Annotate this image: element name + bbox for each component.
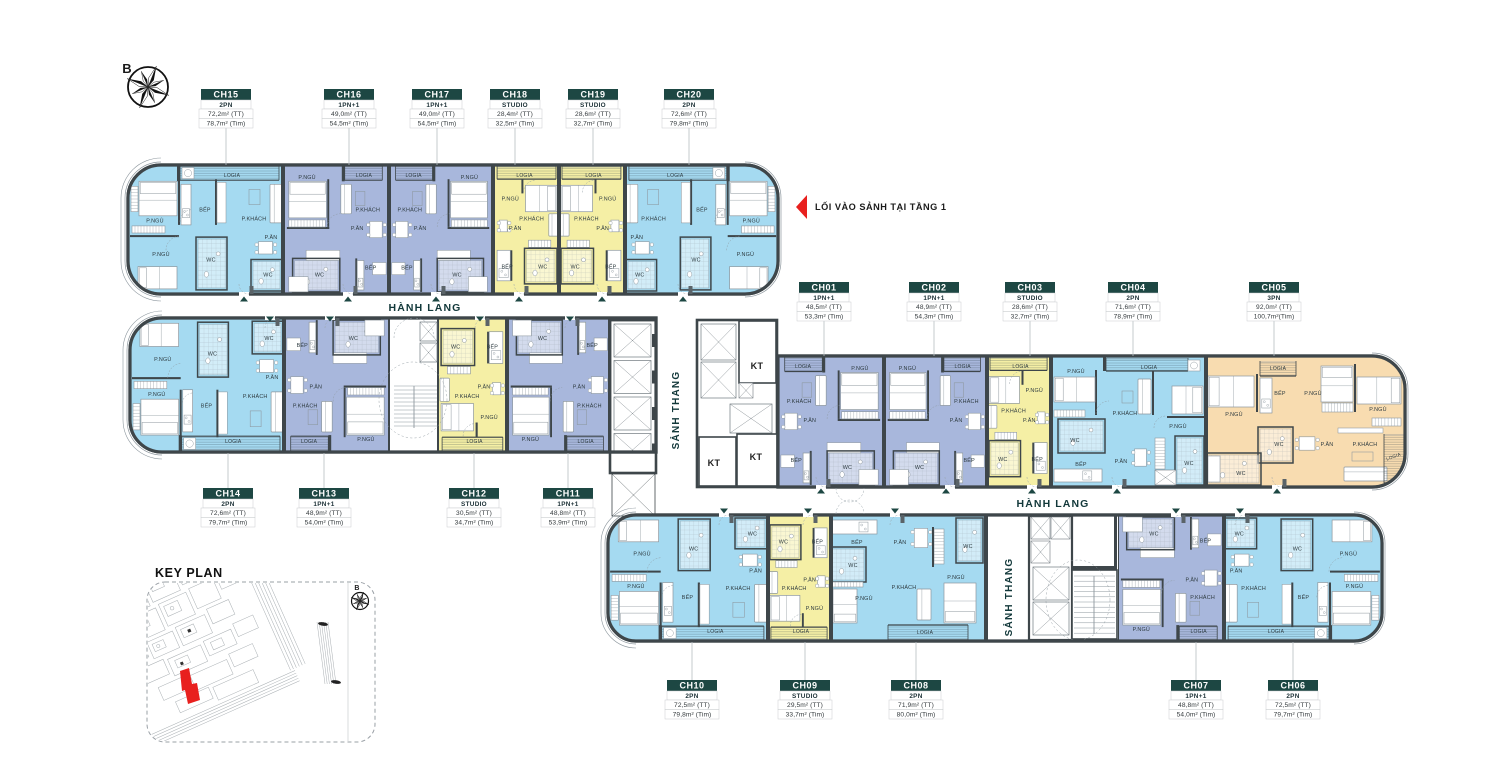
svg-text:LOGIA: LOGIA	[356, 173, 373, 179]
svg-text:SẢNH THANG: SẢNH THANG	[669, 371, 682, 450]
svg-text:CH16: CH16	[336, 90, 361, 100]
svg-text:WC: WC	[451, 344, 460, 350]
svg-text:P.NGỦ: P.NGỦ	[298, 174, 315, 181]
svg-text:WC: WC	[315, 273, 324, 279]
svg-text:1PN+1: 1PN+1	[557, 501, 578, 508]
svg-text:LOGIA: LOGIA	[224, 173, 241, 179]
svg-text:P.KHÁCH: P.KHÁCH	[242, 216, 267, 223]
svg-text:BẾP: BẾP	[1032, 456, 1044, 463]
svg-text:BẾP: BẾP	[365, 264, 377, 271]
svg-text:P.NGỦ: P.NGỦ	[1169, 423, 1186, 430]
svg-text:54,3m² (Tim): 54,3m² (Tim)	[915, 314, 954, 321]
svg-text:BẾP: BẾP	[682, 594, 694, 601]
svg-text:P.KHÁCH: P.KHÁCH	[355, 207, 380, 214]
svg-text:P.ĂN: P.ĂN	[1230, 567, 1243, 574]
svg-text:CH12: CH12	[461, 489, 486, 499]
svg-text:P.NGỦ: P.NGỦ	[806, 605, 823, 612]
svg-text:92,0m² (TT): 92,0m² (TT)	[1256, 304, 1292, 311]
svg-text:29,5m² (TT): 29,5m² (TT)	[787, 702, 823, 709]
svg-text:79,8m² (Tim): 79,8m² (Tim)	[670, 121, 709, 128]
svg-text:WC: WC	[538, 336, 547, 342]
svg-text:P.KHÁCH: P.KHÁCH	[726, 585, 751, 592]
svg-text:WC: WC	[691, 257, 700, 263]
svg-text:71,6m² (TT): 71,6m² (TT)	[1115, 304, 1151, 311]
svg-text:P.KHÁCH: P.KHÁCH	[243, 393, 268, 400]
svg-text:CH14: CH14	[215, 489, 240, 499]
svg-text:P.KHÁCH: P.KHÁCH	[577, 402, 602, 409]
svg-text:WC: WC	[208, 352, 217, 358]
svg-text:LỐI VÀO SẢNH TẠI TẦNG 1: LỐI VÀO SẢNH TẠI TẦNG 1	[815, 201, 946, 212]
svg-text:BẾP: BẾP	[199, 207, 211, 214]
svg-text:WC: WC	[264, 336, 273, 342]
svg-text:P.NGỦ: P.NGỦ	[481, 414, 498, 421]
svg-text:49,0m² (TT): 49,0m² (TT)	[331, 111, 367, 118]
svg-text:P.NGỦ: P.NGỦ	[627, 583, 644, 590]
svg-text:LOGIA: LOGIA	[1268, 629, 1285, 635]
svg-text:CH13: CH13	[311, 489, 336, 499]
svg-text:CH09: CH09	[792, 681, 817, 691]
svg-text:LOGIA: LOGIA	[578, 439, 595, 445]
svg-text:P.NGỦ: P.NGỦ	[1340, 551, 1357, 558]
svg-text:P.NGỦ: P.NGỦ	[522, 436, 539, 443]
svg-text:STUDIO: STUDIO	[461, 501, 487, 508]
svg-text:LOGIA: LOGIA	[793, 629, 810, 635]
svg-text:72,5m² (TT): 72,5m² (TT)	[674, 702, 710, 709]
svg-text:2PN: 2PN	[1126, 295, 1139, 302]
svg-text:P.KHÁCH: P.KHÁCH	[1241, 585, 1266, 592]
svg-text:1PN+1: 1PN+1	[426, 102, 447, 109]
svg-text:48,5m² (TT): 48,5m² (TT)	[806, 304, 842, 311]
svg-text:SẢNH THANG: SẢNH THANG	[1002, 558, 1015, 637]
svg-text:1PN+1: 1PN+1	[1185, 693, 1206, 700]
svg-text:79,7m² (Tim): 79,7m² (Tim)	[209, 520, 248, 527]
svg-text:WC: WC	[1235, 532, 1244, 538]
svg-text:P.NGỦ: P.NGỦ	[154, 356, 171, 363]
svg-text:P.NGỦ: P.NGỦ	[461, 174, 478, 181]
svg-text:WC: WC	[963, 544, 972, 550]
svg-text:P.KHÁCH: P.KHÁCH	[1001, 408, 1026, 415]
svg-text:72,6m² (TT): 72,6m² (TT)	[671, 111, 707, 118]
svg-text:WC: WC	[848, 563, 857, 569]
svg-text:CH11: CH11	[556, 489, 581, 499]
svg-text:32,7m² (Tim): 32,7m² (Tim)	[1011, 314, 1050, 321]
svg-text:2PN: 2PN	[682, 102, 695, 109]
svg-text:CH10: CH10	[679, 681, 704, 691]
svg-text:CH17: CH17	[424, 90, 449, 100]
svg-text:28,6m² (TT): 28,6m² (TT)	[575, 111, 611, 118]
svg-text:P.NGỦ: P.NGỦ	[1067, 368, 1084, 375]
svg-text:WC: WC	[779, 540, 788, 546]
svg-text:P.ĂN: P.ĂN	[749, 567, 762, 574]
svg-text:KT: KT	[750, 452, 763, 462]
svg-text:P.ĂN: P.ĂN	[1321, 441, 1334, 448]
svg-text:P.ĂN: P.ĂN	[894, 539, 907, 546]
svg-text:P.NGỦ: P.NGỦ	[1133, 626, 1150, 633]
svg-text:KT: KT	[751, 361, 764, 371]
svg-text:P.KHÁCH: P.KHÁCH	[892, 584, 917, 591]
svg-text:28,6m² (TT): 28,6m² (TT)	[1012, 304, 1048, 311]
svg-text:WC: WC	[206, 257, 215, 263]
svg-text:54,5m² (Tim): 54,5m² (Tim)	[418, 121, 457, 128]
svg-text:WC: WC	[1293, 547, 1302, 553]
svg-text:30,5m² (TT): 30,5m² (TT)	[456, 510, 492, 517]
svg-text:P.ĂN: P.ĂN	[1023, 417, 1036, 424]
svg-text:54,0m² (Tim): 54,0m² (Tim)	[1177, 712, 1216, 719]
svg-text:WC: WC	[452, 273, 461, 279]
svg-text:P.NGỦ: P.NGỦ	[633, 551, 650, 558]
svg-text:CH03: CH03	[1017, 283, 1042, 293]
svg-text:P.KHÁCH: P.KHÁCH	[574, 216, 599, 223]
svg-text:BẾP: BẾP	[1274, 390, 1286, 397]
svg-text:100,7m²(Tim): 100,7m²(Tim)	[1254, 314, 1295, 321]
svg-text:WC: WC	[538, 264, 547, 270]
svg-text:WC: WC	[915, 465, 924, 471]
svg-text:79,8m² (Tim): 79,8m² (Tim)	[673, 712, 712, 719]
svg-text:P.NGỦ: P.NGỦ	[599, 195, 616, 202]
svg-text:72,6m² (TT): 72,6m² (TT)	[210, 510, 246, 517]
svg-text:54,0m² (Tim): 54,0m² (Tim)	[305, 520, 344, 527]
svg-text:CH18: CH18	[502, 90, 527, 100]
svg-text:P.NGỦ: P.NGỦ	[737, 251, 754, 258]
svg-text:P.ĂN: P.ĂN	[803, 576, 816, 583]
svg-text:WC: WC	[1070, 438, 1079, 444]
svg-text:LOGIA: LOGIA	[225, 439, 242, 445]
svg-text:P.NGỦ: P.NGỦ	[1026, 387, 1043, 394]
svg-text:P.ĂN: P.ĂN	[596, 225, 609, 232]
svg-text:P.NGỦ: P.NGỦ	[1304, 390, 1321, 397]
svg-text:2PN: 2PN	[1286, 693, 1299, 700]
svg-text:BẾP: BẾP	[791, 457, 803, 464]
svg-text:P.KHÁCH: P.KHÁCH	[1190, 594, 1215, 601]
svg-text:CH05: CH05	[1261, 283, 1286, 293]
svg-text:KT: KT	[708, 458, 721, 468]
svg-text:BẾP: BẾP	[851, 539, 863, 546]
svg-text:80,0m² (Tim): 80,0m² (Tim)	[897, 712, 936, 719]
svg-text:P.NGỦ: P.NGỦ	[899, 365, 916, 372]
svg-text:P.ĂN: P.ĂN	[478, 383, 491, 390]
svg-text:P.KHÁCH: P.KHÁCH	[455, 393, 480, 400]
svg-text:P.ĂN: P.ĂN	[1115, 458, 1128, 465]
svg-text:P.KHÁCH: P.KHÁCH	[519, 216, 544, 223]
svg-text:LOGIA: LOGIA	[1191, 629, 1208, 635]
svg-text:LOGIA: LOGIA	[917, 630, 934, 636]
svg-text:P.NGỦ: P.NGỦ	[148, 391, 165, 398]
svg-text:P.KHÁCH: P.KHÁCH	[1353, 441, 1378, 448]
svg-text:WC: WC	[1236, 471, 1245, 477]
svg-text:LOGIA: LOGIA	[795, 364, 812, 370]
svg-text:1PN+1: 1PN+1	[338, 102, 359, 109]
svg-text:B: B	[122, 61, 132, 76]
svg-text:BẾP: BẾP	[587, 342, 599, 349]
svg-text:LOGIA: LOGIA	[1012, 364, 1029, 370]
svg-text:3PN: 3PN	[1267, 295, 1280, 302]
svg-text:BẾP: BẾP	[1075, 461, 1087, 468]
svg-text:STUDIO: STUDIO	[1017, 295, 1043, 302]
svg-text:LOGIA: LOGIA	[667, 173, 684, 179]
svg-text:P.ĂN: P.ĂN	[309, 383, 322, 390]
svg-text:WC: WC	[571, 264, 580, 270]
svg-text:54,5m² (Tim): 54,5m² (Tim)	[330, 121, 369, 128]
svg-text:LOGIA: LOGIA	[1270, 366, 1287, 372]
svg-text:1PN+1: 1PN+1	[313, 501, 334, 508]
svg-text:WC: WC	[349, 336, 358, 342]
svg-text:LOGIA: LOGIA	[1141, 365, 1158, 371]
svg-text:P.NGỦ: P.NGỦ	[947, 574, 964, 581]
svg-text:BẾP: BẾP	[812, 539, 824, 546]
svg-text:P.KHÁCH: P.KHÁCH	[954, 398, 979, 405]
svg-text:LOGIA: LOGIA	[466, 439, 483, 445]
svg-text:B: B	[354, 585, 359, 592]
svg-text:P.NGỦ: P.NGỦ	[152, 251, 169, 258]
svg-text:LOGIA: LOGIA	[301, 439, 318, 445]
svg-text:KEY PLAN: KEY PLAN	[155, 566, 223, 580]
svg-text:BẾP: BẾP	[1200, 538, 1212, 545]
svg-text:CH01: CH01	[811, 283, 836, 293]
svg-text:LOGIA: LOGIA	[405, 173, 422, 179]
svg-text:P.ĂN: P.ĂN	[1186, 576, 1199, 583]
svg-text:49,0m² (TT): 49,0m² (TT)	[419, 111, 455, 118]
svg-text:P.ĂN: P.ĂN	[266, 374, 279, 381]
svg-text:P.NGỦ: P.NGỦ	[1369, 406, 1386, 413]
svg-text:P.NGỦ: P.NGỦ	[1225, 411, 1242, 418]
svg-text:P.ĂN: P.ĂN	[630, 234, 643, 241]
svg-text:2PN: 2PN	[685, 693, 698, 700]
svg-text:79,7m² (Tim): 79,7m² (Tim)	[1274, 712, 1313, 719]
svg-text:P.NGỦ: P.NGỦ	[743, 218, 760, 225]
svg-text:WC: WC	[689, 547, 698, 553]
svg-text:LOGIA: LOGIA	[516, 173, 533, 179]
svg-text:HÀNH LANG: HÀNH LANG	[1017, 497, 1090, 510]
svg-text:P.NGỦ: P.NGỦ	[1346, 583, 1363, 590]
svg-text:P.KHÁCH: P.KHÁCH	[782, 585, 807, 592]
svg-text:P.ĂN: P.ĂN	[803, 417, 816, 424]
svg-text:P.ĂN: P.ĂN	[351, 225, 364, 232]
svg-text:CH02: CH02	[921, 283, 946, 293]
svg-text:71,9m² (TT): 71,9m² (TT)	[898, 702, 934, 709]
svg-text:48,8m² (TT): 48,8m² (TT)	[550, 510, 586, 517]
svg-text:53,9m² (Tim): 53,9m² (Tim)	[549, 520, 588, 527]
svg-text:LOGIA: LOGIA	[707, 629, 724, 635]
svg-text:LOGIA: LOGIA	[955, 364, 972, 370]
svg-text:P.NGỦ: P.NGỦ	[502, 195, 519, 202]
svg-text:BẾP: BẾP	[201, 402, 213, 409]
svg-text:1PN+1: 1PN+1	[923, 295, 944, 302]
svg-text:CH20: CH20	[676, 90, 701, 100]
svg-text:STUDIO: STUDIO	[580, 102, 606, 109]
svg-text:P.ĂN: P.ĂN	[265, 234, 278, 241]
svg-text:CH06: CH06	[1280, 681, 1305, 691]
svg-text:LOGIA: LOGIA	[585, 173, 602, 179]
svg-text:P.NGỦ: P.NGỦ	[855, 595, 872, 602]
svg-text:WC: WC	[998, 457, 1007, 463]
svg-text:WC: WC	[1184, 461, 1193, 467]
svg-text:CH07: CH07	[1183, 681, 1208, 691]
svg-text:BẾP: BẾP	[1298, 594, 1310, 601]
svg-text:STUDIO: STUDIO	[792, 693, 818, 700]
svg-text:WC: WC	[843, 465, 852, 471]
svg-text:53,3m² (Tim): 53,3m² (Tim)	[805, 314, 844, 321]
svg-text:WC: WC	[1274, 442, 1283, 448]
svg-text:P.KHÁCH: P.KHÁCH	[293, 402, 318, 409]
svg-text:HÀNH LANG: HÀNH LANG	[389, 301, 462, 314]
svg-text:32,7m² (Tim): 32,7m² (Tim)	[574, 121, 613, 128]
svg-text:P.ĂN: P.ĂN	[414, 225, 427, 232]
svg-text:WC: WC	[1149, 532, 1158, 538]
svg-text:CH15: CH15	[213, 90, 238, 100]
svg-text:1PN+1: 1PN+1	[813, 295, 834, 302]
svg-text:BẾP: BẾP	[696, 207, 708, 214]
svg-text:78,9m² (Tim): 78,9m² (Tim)	[1114, 314, 1153, 321]
svg-text:P.ĂN: P.ĂN	[950, 417, 963, 424]
svg-text:34,7m² (Tim): 34,7m² (Tim)	[455, 520, 494, 527]
svg-text:72,5m² (TT): 72,5m² (TT)	[1275, 702, 1311, 709]
svg-text:P.ĂN: P.ĂN	[573, 383, 586, 390]
svg-text:CH04: CH04	[1120, 283, 1145, 293]
svg-text:P.NGỦ: P.NGỦ	[851, 365, 868, 372]
svg-text:BẾP: BẾP	[297, 342, 309, 349]
svg-text:BẾP: BẾP	[401, 264, 413, 271]
svg-text:STUDIO: STUDIO	[502, 102, 528, 109]
svg-text:P.NGỦ: P.NGỦ	[146, 218, 163, 225]
svg-text:BẾP: BẾP	[502, 263, 514, 270]
svg-text:WC: WC	[748, 532, 757, 538]
svg-text:WC: WC	[635, 273, 644, 279]
svg-text:BẾP: BẾP	[964, 457, 976, 464]
svg-text:48,9m² (TT): 48,9m² (TT)	[306, 510, 342, 517]
svg-text:BẾP: BẾP	[605, 263, 617, 270]
svg-text:33,7m² (Tim): 33,7m² (Tim)	[786, 712, 825, 719]
svg-text:48,8m² (TT): 48,8m² (TT)	[1178, 702, 1214, 709]
svg-text:2PN: 2PN	[909, 693, 922, 700]
svg-text:2PN: 2PN	[221, 501, 234, 508]
svg-text:P.KHÁCH: P.KHÁCH	[397, 207, 422, 214]
svg-text:P.NGỦ: P.NGỦ	[357, 436, 374, 443]
svg-text:BẾP: BẾP	[487, 343, 499, 350]
svg-text:48,9m² (TT): 48,9m² (TT)	[916, 304, 952, 311]
svg-text:P.KHÁCH: P.KHÁCH	[1113, 410, 1138, 417]
svg-text:P.KHÁCH: P.KHÁCH	[787, 398, 812, 405]
svg-text:72,2m² (TT): 72,2m² (TT)	[208, 111, 244, 118]
svg-text:P.KHÁCH: P.KHÁCH	[641, 216, 666, 223]
svg-text:78,7m² (Tim): 78,7m² (Tim)	[207, 121, 246, 128]
svg-text:28,4m² (TT): 28,4m² (TT)	[497, 111, 533, 118]
svg-text:32,5m² (Tim): 32,5m² (Tim)	[496, 121, 535, 128]
svg-text:P.ĂN: P.ĂN	[509, 225, 522, 232]
svg-text:WC: WC	[263, 273, 272, 279]
svg-text:2PN: 2PN	[219, 102, 232, 109]
svg-text:CH08: CH08	[903, 681, 928, 691]
svg-text:CH19: CH19	[580, 90, 605, 100]
